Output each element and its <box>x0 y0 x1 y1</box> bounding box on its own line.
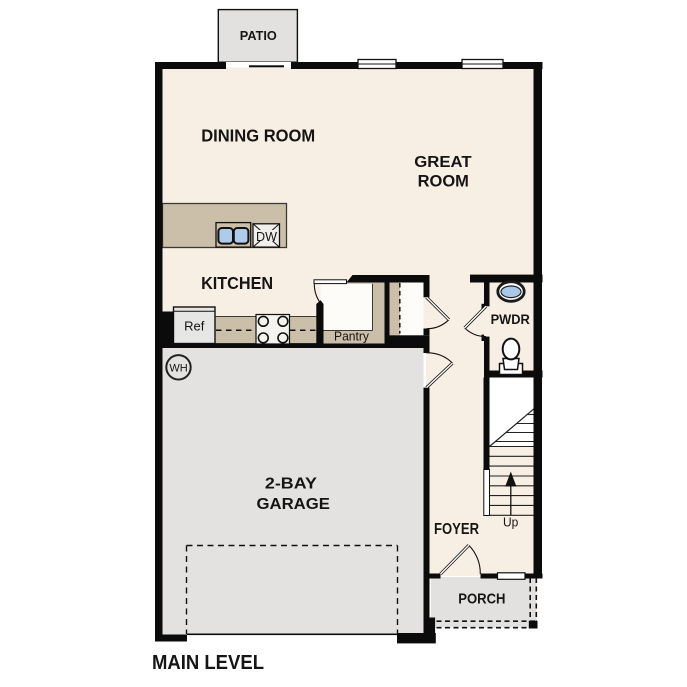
svg-text:PATIO: PATIO <box>240 28 277 43</box>
svg-text:Up: Up <box>503 516 518 530</box>
svg-text:KITCHEN: KITCHEN <box>201 273 273 293</box>
svg-text:WH: WH <box>169 362 187 374</box>
svg-text:GREAT: GREAT <box>414 154 472 171</box>
svg-text:MAIN LEVEL: MAIN LEVEL <box>152 651 264 674</box>
svg-text:PORCH: PORCH <box>458 591 505 607</box>
svg-text:PWDR: PWDR <box>491 312 530 328</box>
svg-text:DINING ROOM: DINING ROOM <box>201 125 315 145</box>
svg-text:GARAGE: GARAGE <box>257 496 331 513</box>
svg-text:ROOM: ROOM <box>418 173 469 191</box>
svg-text:DW: DW <box>256 229 278 244</box>
svg-text:Ref: Ref <box>184 319 205 334</box>
svg-text:FOYER: FOYER <box>434 521 479 538</box>
svg-text:Pantry: Pantry <box>334 330 370 344</box>
svg-text:2-BAY: 2-BAY <box>265 475 317 492</box>
